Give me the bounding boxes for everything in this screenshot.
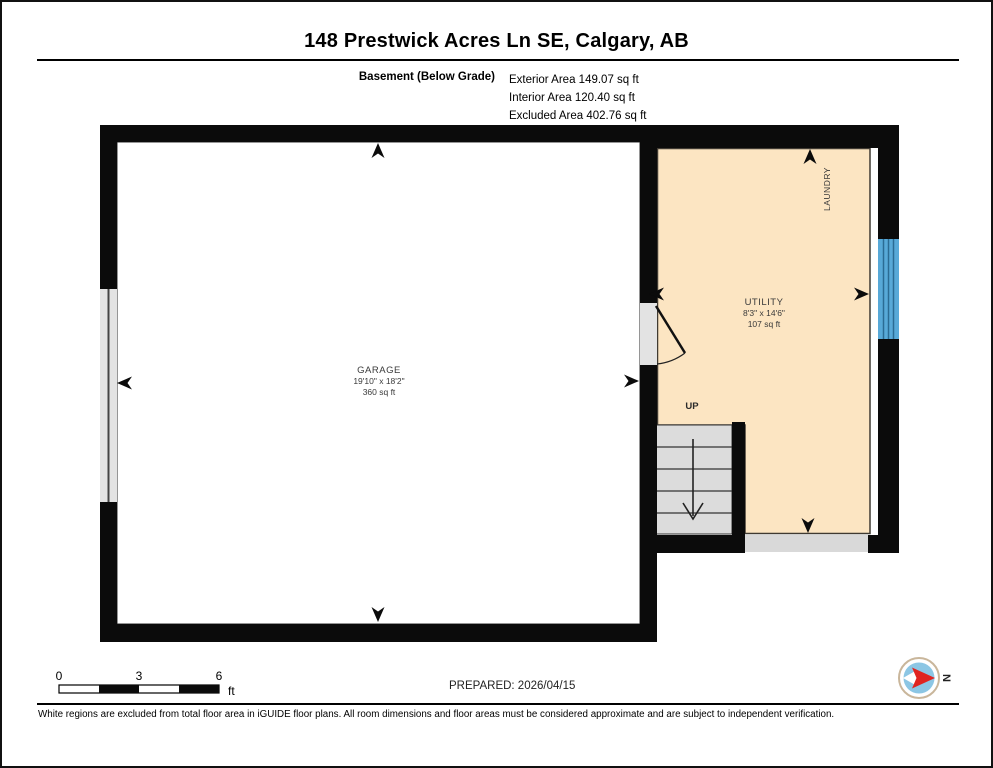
wall-top-utility: [640, 125, 899, 148]
utility-dims: 8'3" x 14'6": [743, 308, 785, 318]
garage-dims: 19'10" x 18'2": [353, 376, 404, 386]
floorplan-page: 148 Prestwick Acres Ln SE, Calgary, AB B…: [0, 0, 993, 768]
compass: N: [899, 658, 952, 698]
utility-area: 107 sq ft: [748, 319, 781, 329]
wall-left-lower: [100, 502, 117, 642]
wall-bottom-garage: [100, 624, 657, 642]
disclaimer-text: White regions are excluded from total fl…: [38, 709, 834, 720]
wall-middle-lower: [640, 365, 657, 642]
staircase: [656, 425, 732, 534]
scale-3: 3: [136, 669, 143, 683]
garage-name: GARAGE: [357, 365, 401, 376]
prepared-date: PREPARED: 2026/04/15: [449, 680, 575, 692]
compass-north-label: N: [940, 674, 952, 682]
wall-stairs-right: [732, 422, 745, 553]
scale-unit: ft: [228, 684, 235, 698]
wall-left-upper: [100, 125, 117, 289]
scale-0: 0: [56, 669, 63, 683]
up-label: UP: [685, 401, 699, 412]
excluded-strip: [745, 535, 868, 552]
footer-divider: [37, 703, 959, 705]
floorplan-drawing: GARAGE 19'10" x 18'2" 360 sq ft UTILITY …: [2, 2, 993, 768]
wall-middle-upper: [640, 125, 657, 303]
garage-door: [100, 289, 117, 502]
scale-segment-2: [179, 685, 219, 693]
scale-6: 6: [216, 669, 223, 683]
wall-bottom-right-corner: [868, 535, 899, 553]
door-opening: [640, 303, 657, 365]
laundry-label: LAUNDRY: [822, 167, 832, 211]
scale-segment-1: [99, 685, 139, 693]
garage-area: 360 sq ft: [363, 387, 396, 397]
scale-bar: 0 3 6 ft: [56, 669, 236, 698]
utility-name: UTILITY: [745, 297, 784, 308]
window: [878, 239, 899, 339]
wall-stairs-bottom: [646, 535, 745, 553]
